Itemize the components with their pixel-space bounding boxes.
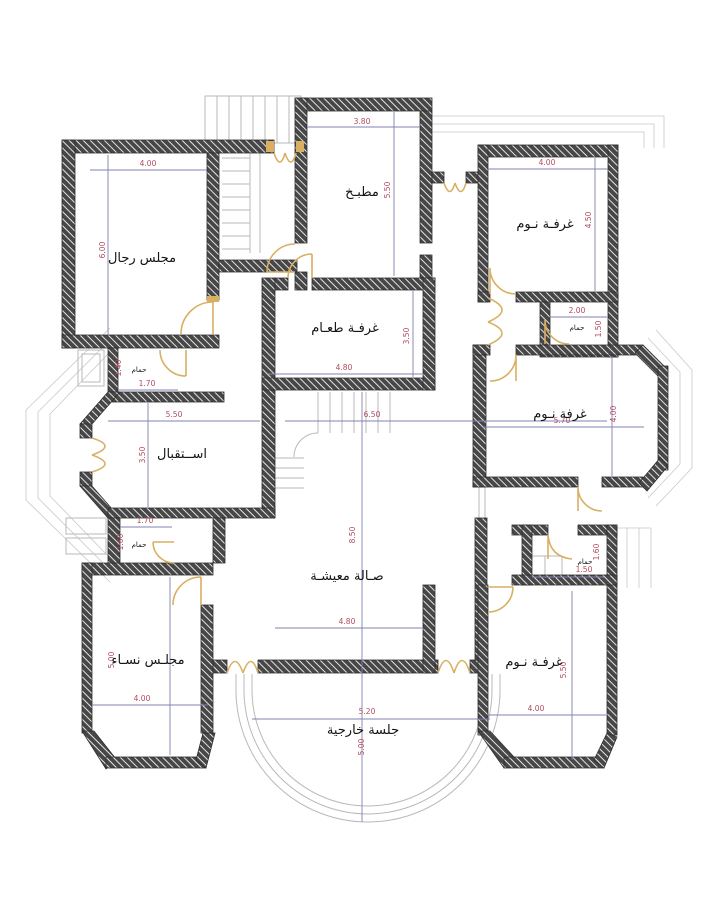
dim-label: 4.00 [134,694,151,703]
wall-segment [82,563,92,733]
floor-plan-canvas: 4.00 6.00 3.80 5.50 4.00 4.50 2.00 1.50 … [0,0,720,900]
wall-segment [219,260,297,272]
wall-chamfer [594,733,617,768]
door-arc [490,355,516,381]
wall-segment [473,345,486,487]
double-door-arc [444,183,466,192]
room-label-bath-bottom-right: حمام [578,558,593,566]
dim-label: 1.70 [137,516,154,525]
steps-treads [217,96,289,143]
door-jamb [296,141,304,152]
dim-label: 2.00 [569,306,586,315]
wall-segment [516,345,643,355]
wall-segment [504,757,604,768]
wall-segment [295,272,307,290]
wall-segment [262,278,275,518]
dim-label: 1.70 [139,379,156,388]
wall-segment [213,660,227,673]
wall-segment [312,278,435,290]
dimension-line [488,591,606,760]
wall-segment [602,477,643,487]
wall-segment [478,585,488,735]
room-label-bath-top-right: حمام [570,324,585,332]
dimension-line [90,155,207,335]
wall-chamfer [639,458,668,491]
door-arc [173,577,201,605]
wall-segment [213,518,225,563]
dim-label: 8.50 [348,526,357,543]
wall-segment [258,660,438,673]
wall-segment [608,145,618,357]
door-arc [490,268,516,294]
room-label-dining: غرفـة طعـام [311,321,379,336]
wall-segment [607,525,617,735]
wall-segment [473,345,490,355]
wall-segment [62,140,75,348]
wall-segment [108,392,224,402]
wall-segment [423,278,435,390]
dim-label: 4.50 [584,211,593,228]
dim-label: 4.00 [609,405,618,422]
wall-segment [106,757,206,768]
wall-segment [295,98,432,111]
wall-segment [262,378,435,390]
wall-segment [466,172,478,183]
wall-segment [420,255,432,278]
floor-plan-page: 4.00 6.00 3.80 5.50 4.00 4.50 2.00 1.50 … [0,0,720,900]
double-door-arc [488,298,502,345]
door-arc [578,487,602,511]
dim-label: 1.40 [114,359,123,376]
wall-chamfer [196,733,215,768]
double-door-arc [438,661,470,674]
door-arc [488,587,513,612]
wall-segment [512,575,617,585]
room-label-outdoor-seating: جلسة خارجية [327,723,399,738]
double-door-arc [92,438,105,472]
dim-label: 5.00 [357,738,366,755]
dim-label: 4.80 [336,363,353,372]
door-jamb [207,296,219,302]
room-label-majlis-rijal: مجلس رجال [108,251,176,266]
door-arc [160,350,186,376]
dim-label: 1.50 [594,320,603,337]
door-jamb [266,141,274,152]
double-door-arc [274,153,296,162]
dim-label: 3.50 [138,446,147,463]
dim-label: 4.80 [339,617,356,626]
dim-label: 6.00 [98,241,107,258]
double-door-arc [227,662,258,674]
roof-step-lines [432,116,664,148]
wall-segment [432,172,444,183]
wall-segment [658,366,668,470]
dim-label: 4.00 [528,704,545,713]
dim-label: 1.60 [116,533,125,550]
hall-stair-curve [294,433,318,457]
room-label-living-hall: صـالة معيشـة [310,569,383,584]
door-arc [548,535,572,559]
wall-segment [80,472,92,486]
dim-label: 3.50 [402,327,411,344]
dim-label: 5.20 [359,707,376,716]
main-stair-stringer [250,153,260,253]
wall-segment [423,585,435,673]
wall-segment [82,563,213,575]
outdoor-arc-connectors [236,674,500,690]
wall-segment [295,98,307,243]
wall-segment [478,145,618,157]
room-label-bedroom-top-right: غرفـة نـوم [516,217,573,232]
wall-chamfer [80,392,120,424]
window-lines [479,487,485,518]
room-label-bedroom-mid-right: غرفة نـوم [533,407,587,422]
wall-segment [420,111,432,243]
wall-segment [478,292,490,302]
wall-segment [473,477,578,487]
door-arc [181,302,213,334]
dim-label: 1.50 [576,565,593,574]
wall-segment [478,145,488,302]
dim-label: 4.00 [539,158,556,167]
dim-label: 6.50 [364,410,381,419]
dim-label: 5.50 [383,181,392,198]
room-label-bedroom-bottom-right: غرفـة نـوم [505,655,562,670]
room-label-kitchen: مطبـخ [345,185,379,200]
room-label-reception: اســتقبال [157,447,207,462]
room-labels: مجلس رجال مطبـخ غرفـة نـوم حمام غرفـة طع… [108,185,592,738]
room-label-bath-reception: حمام [132,541,147,549]
wall-segment [201,605,213,733]
steps-bottom-right [617,528,651,588]
wall-segment [80,424,92,438]
room-label-bath-top-left: حمام [132,366,147,374]
wall-segment [108,508,275,518]
terrace-step-lines-left [26,328,110,582]
dim-label: 3.80 [354,117,371,126]
wall-segment [275,278,288,290]
wall-segment [207,153,219,300]
dim-label: 5.50 [166,410,183,419]
room-label-majlis-nisa: مجلـس نسـاء [111,653,184,668]
main-stair-treads [222,158,250,249]
wall-segment [62,335,219,348]
door-arc [153,542,174,563]
wall-segment [62,140,274,153]
wall-segment [516,292,618,302]
dim-label: 1.60 [592,543,601,560]
dim-label: 4.00 [140,159,157,168]
hall-stair-lower-treads [272,458,304,488]
